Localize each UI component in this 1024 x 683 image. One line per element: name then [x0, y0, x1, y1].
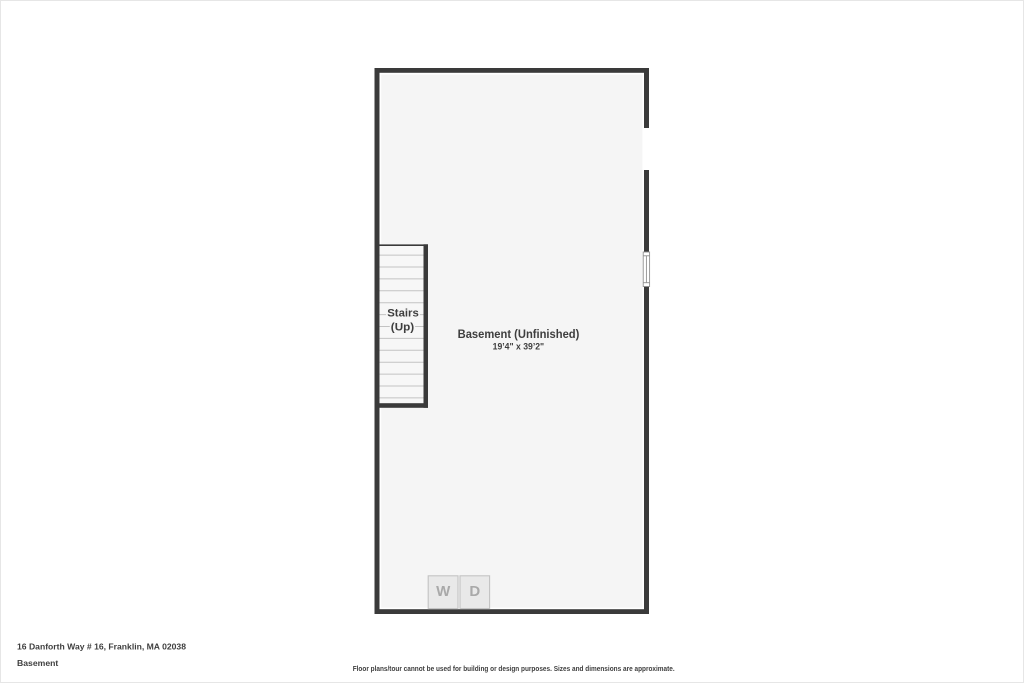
svg-text:19’4" x 39’2": 19’4" x 39’2": [493, 342, 545, 352]
svg-text:(Up): (Up): [391, 322, 415, 334]
svg-text:Basement: Basement: [17, 658, 59, 668]
svg-text:D: D: [469, 583, 480, 600]
svg-text:W: W: [436, 583, 451, 600]
svg-text:Basement (Unfinished): Basement (Unfinished): [458, 327, 580, 341]
svg-text:Floor plans/tour cannot be use: Floor plans/tour cannot be used for buil…: [353, 666, 675, 673]
svg-text:Stairs: Stairs: [387, 308, 419, 320]
svg-text:16 Danforth Way # 16, Franklin: 16 Danforth Way # 16, Franklin, MA 02038: [17, 642, 186, 652]
